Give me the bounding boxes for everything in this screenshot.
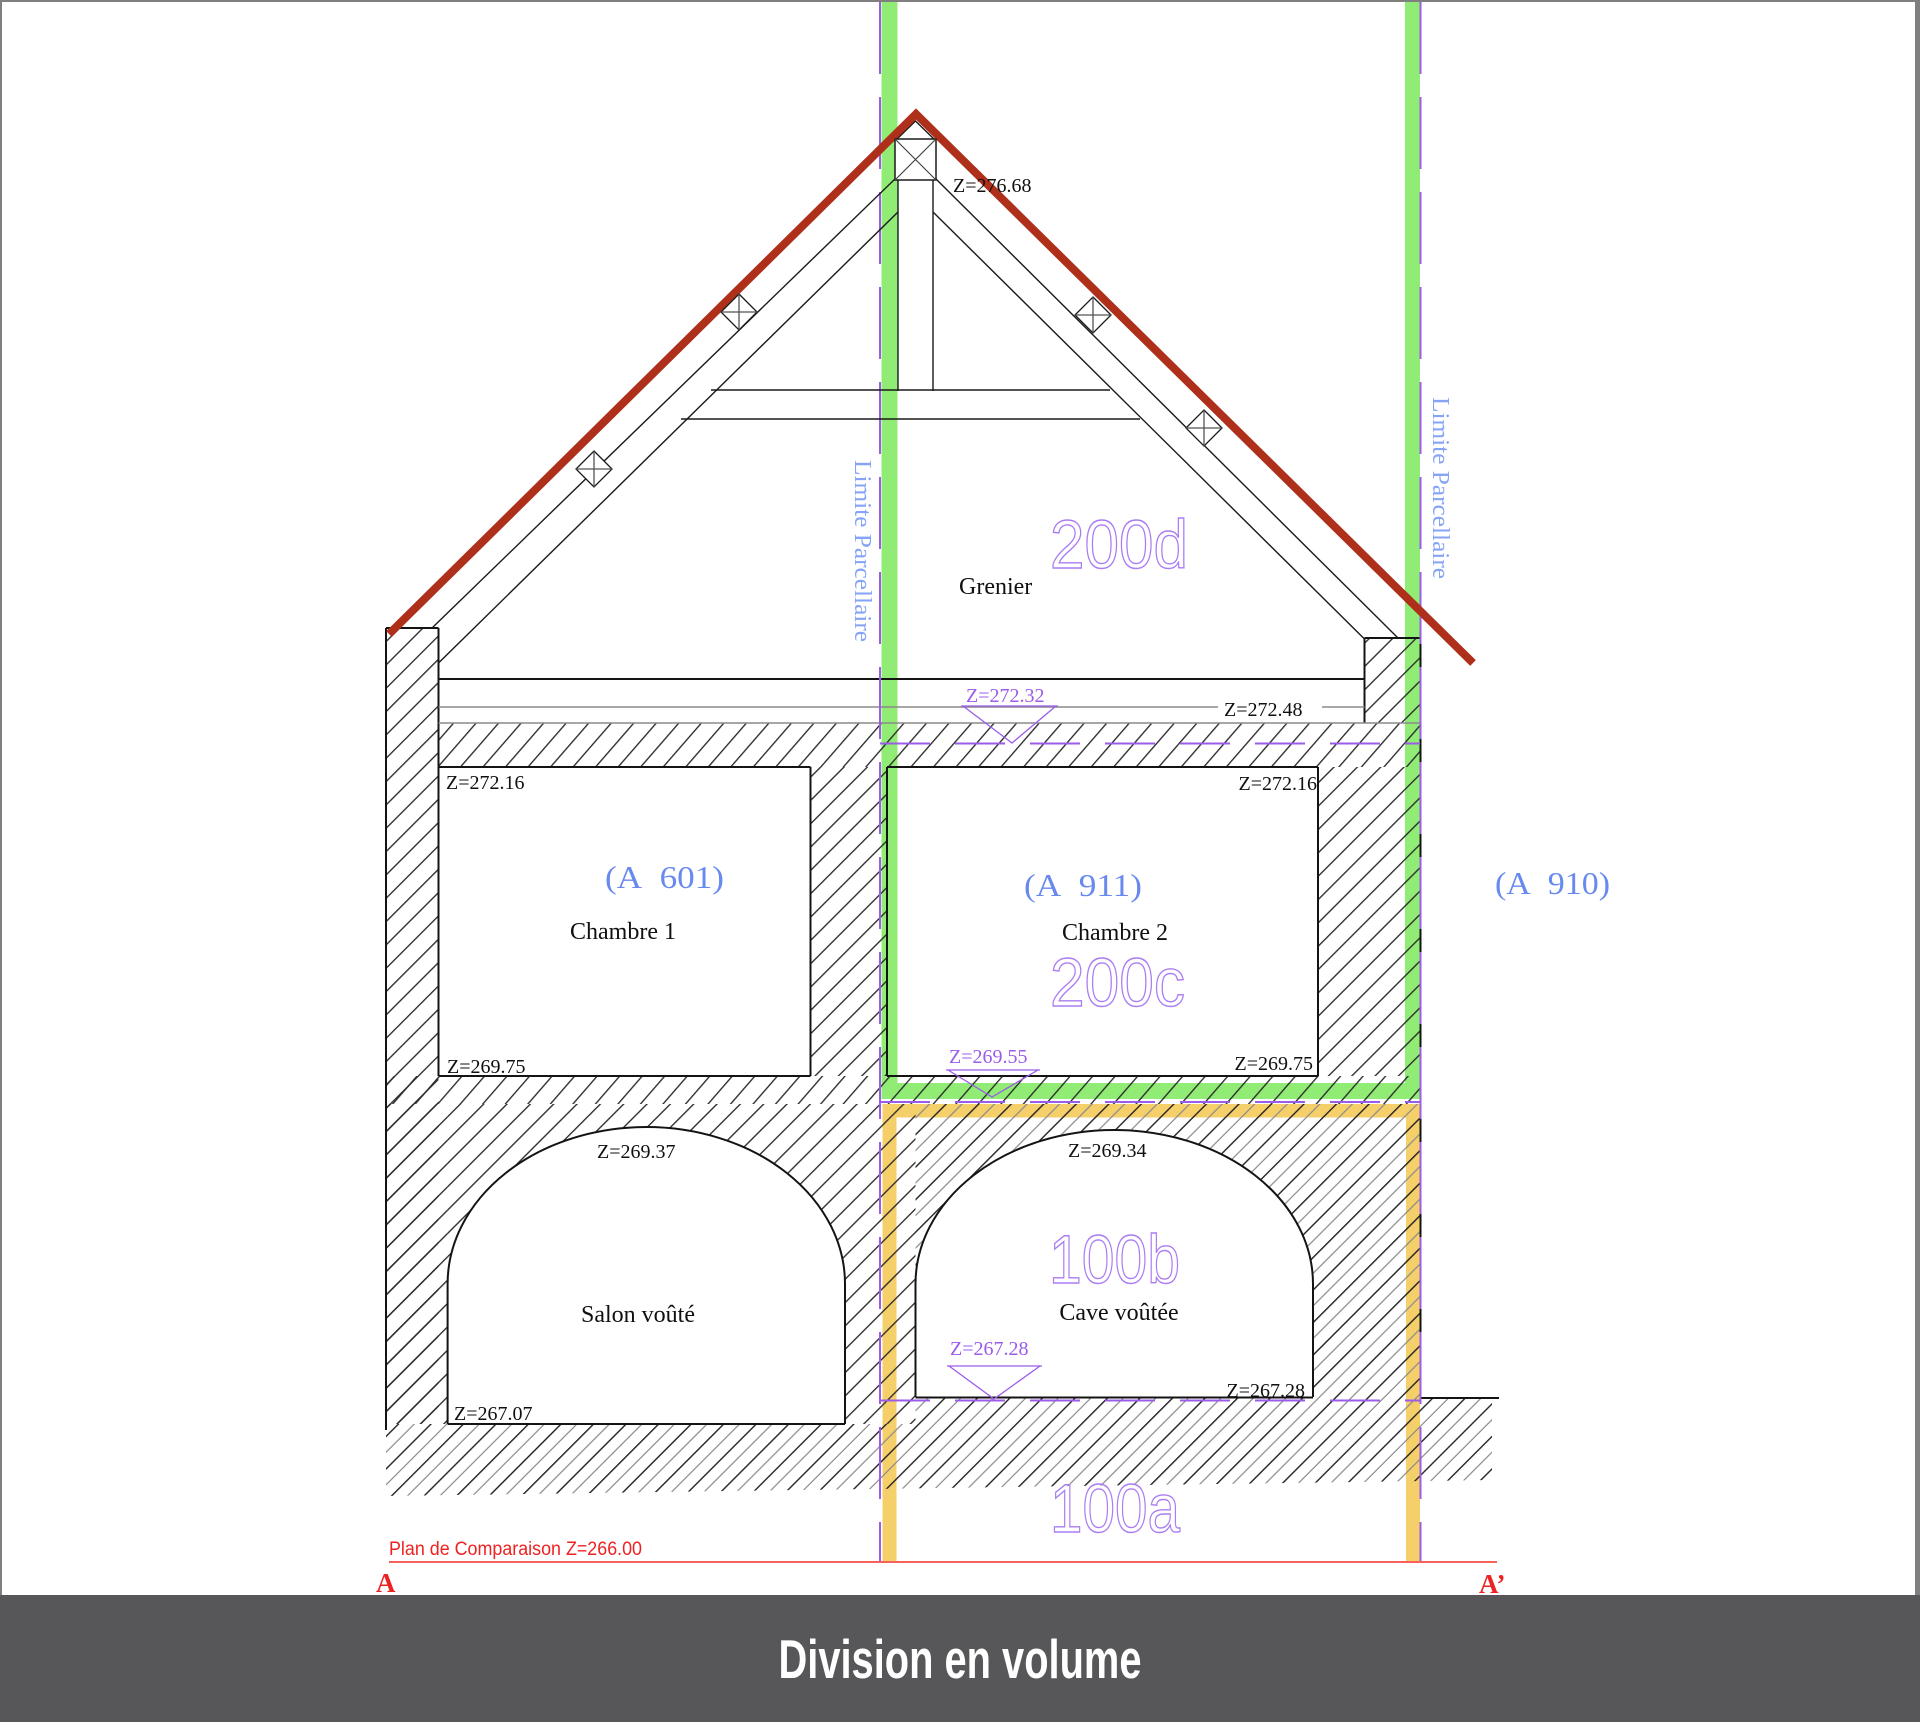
svg-text:Z=272.16: Z=272.16 — [1239, 773, 1318, 795]
svg-text:Cave voûtée: Cave voûtée — [1059, 1300, 1178, 1326]
svg-text:Chambre 2: Chambre 2 — [1062, 920, 1168, 946]
svg-text:Z=272.16: Z=272.16 — [446, 772, 525, 794]
svg-text:(A 910): (A 910) — [1495, 865, 1610, 901]
svg-text:Salon voûté: Salon voûté — [581, 1302, 695, 1328]
svg-text:Z=267.07: Z=267.07 — [454, 1403, 533, 1425]
svg-text:Limite Parcellaire: Limite Parcellaire — [849, 460, 875, 642]
svg-text:Division en volume: Division en volume — [779, 1628, 1142, 1690]
svg-text:(A 911): (A 911) — [1024, 867, 1142, 903]
svg-text:100b: 100b — [1049, 1221, 1180, 1298]
svg-text:100a: 100a — [1050, 1470, 1181, 1547]
svg-text:Limite Parcellaire: Limite Parcellaire — [1427, 397, 1453, 579]
svg-text:Z=269.75: Z=269.75 — [447, 1056, 526, 1078]
svg-text:A: A — [376, 1568, 396, 1598]
svg-text:Z=272.32: Z=272.32 — [966, 685, 1045, 707]
svg-text:Z=269.34: Z=269.34 — [1068, 1140, 1147, 1162]
svg-text:Z=269.75: Z=269.75 — [1235, 1053, 1314, 1075]
svg-text:(A 601): (A 601) — [605, 859, 724, 895]
svg-text:Z=272.48: Z=272.48 — [1224, 699, 1303, 721]
svg-text:Plan de Comparaison Z=266.00: Plan de Comparaison Z=266.00 — [389, 1539, 642, 1560]
svg-text:Chambre 1: Chambre 1 — [570, 919, 676, 945]
svg-text:200c: 200c — [1050, 944, 1185, 1021]
svg-text:Z=267.28: Z=267.28 — [950, 1338, 1029, 1360]
svg-text:Z=267.28: Z=267.28 — [1227, 1380, 1306, 1402]
svg-text:200d: 200d — [1050, 506, 1188, 583]
svg-text:Grenier: Grenier — [959, 574, 1032, 600]
svg-text:Z=276.68: Z=276.68 — [953, 175, 1032, 197]
svg-text:Z=269.55: Z=269.55 — [949, 1046, 1028, 1068]
svg-text:Z=269.37: Z=269.37 — [597, 1141, 676, 1163]
svg-text:A’: A’ — [1479, 1569, 1506, 1599]
